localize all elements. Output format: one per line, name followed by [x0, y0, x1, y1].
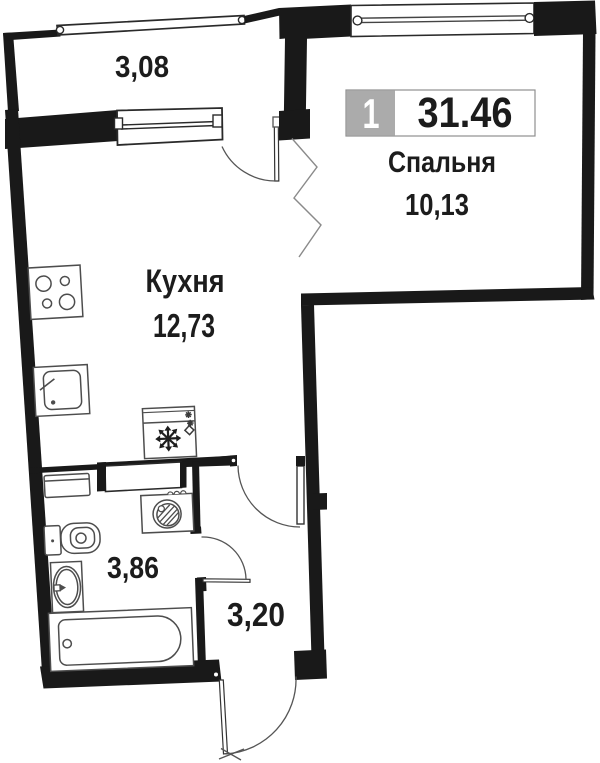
svg-text:Кухня: Кухня — [146, 263, 225, 299]
svg-text:12,73: 12,73 — [153, 307, 215, 344]
svg-text:1: 1 — [363, 90, 380, 137]
svg-text:10,13: 10,13 — [405, 187, 469, 222]
svg-text:3,86: 3,86 — [107, 550, 159, 585]
svg-text:3,20: 3,20 — [227, 596, 285, 633]
svg-text:Спальня: Спальня — [388, 146, 496, 179]
svg-text:31.46: 31.46 — [418, 89, 513, 137]
svg-text:3,08: 3,08 — [115, 49, 169, 84]
